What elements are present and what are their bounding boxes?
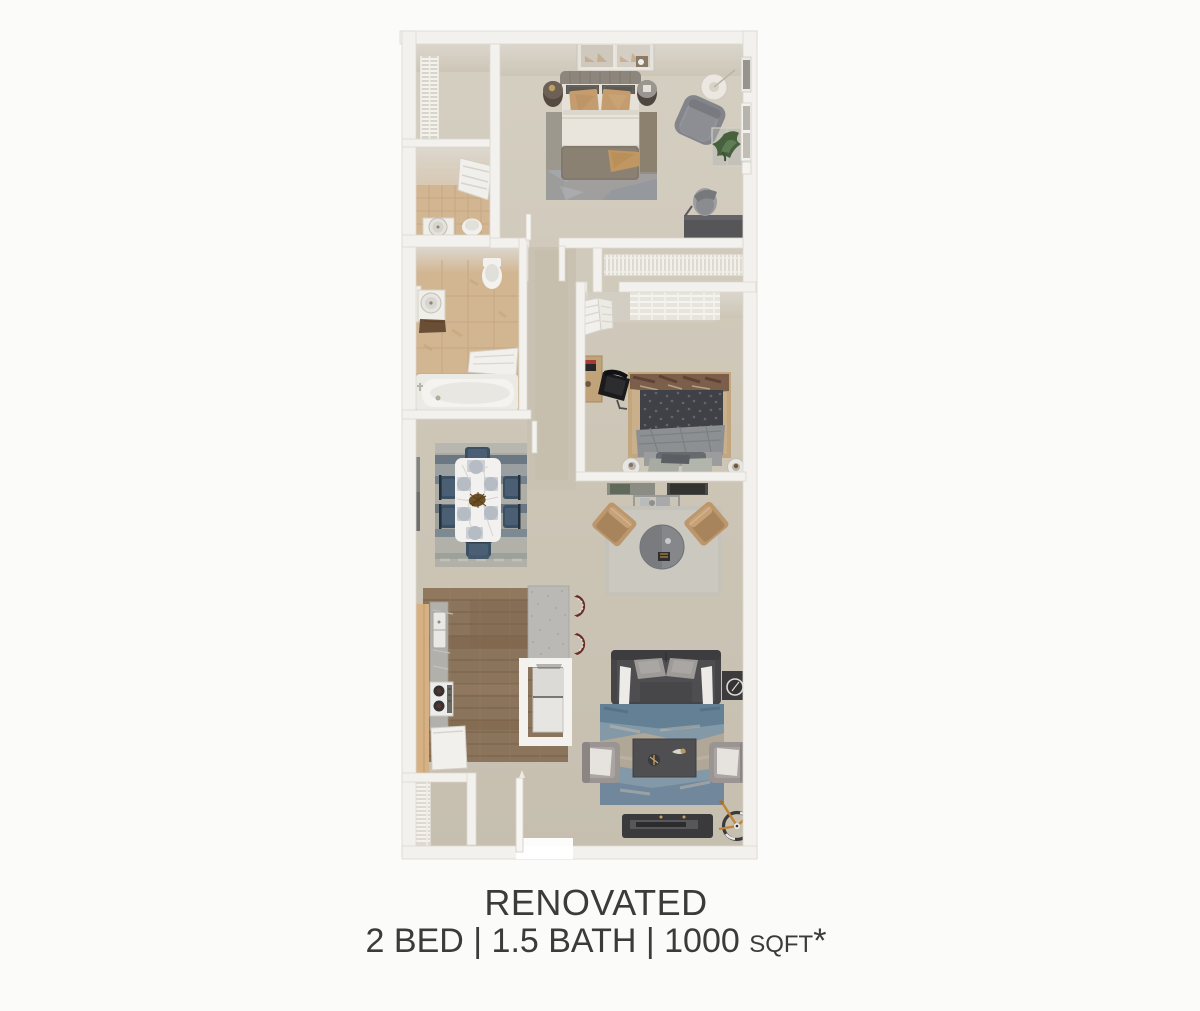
svg-text:RENOVATED: RENOVATED (484, 882, 707, 923)
